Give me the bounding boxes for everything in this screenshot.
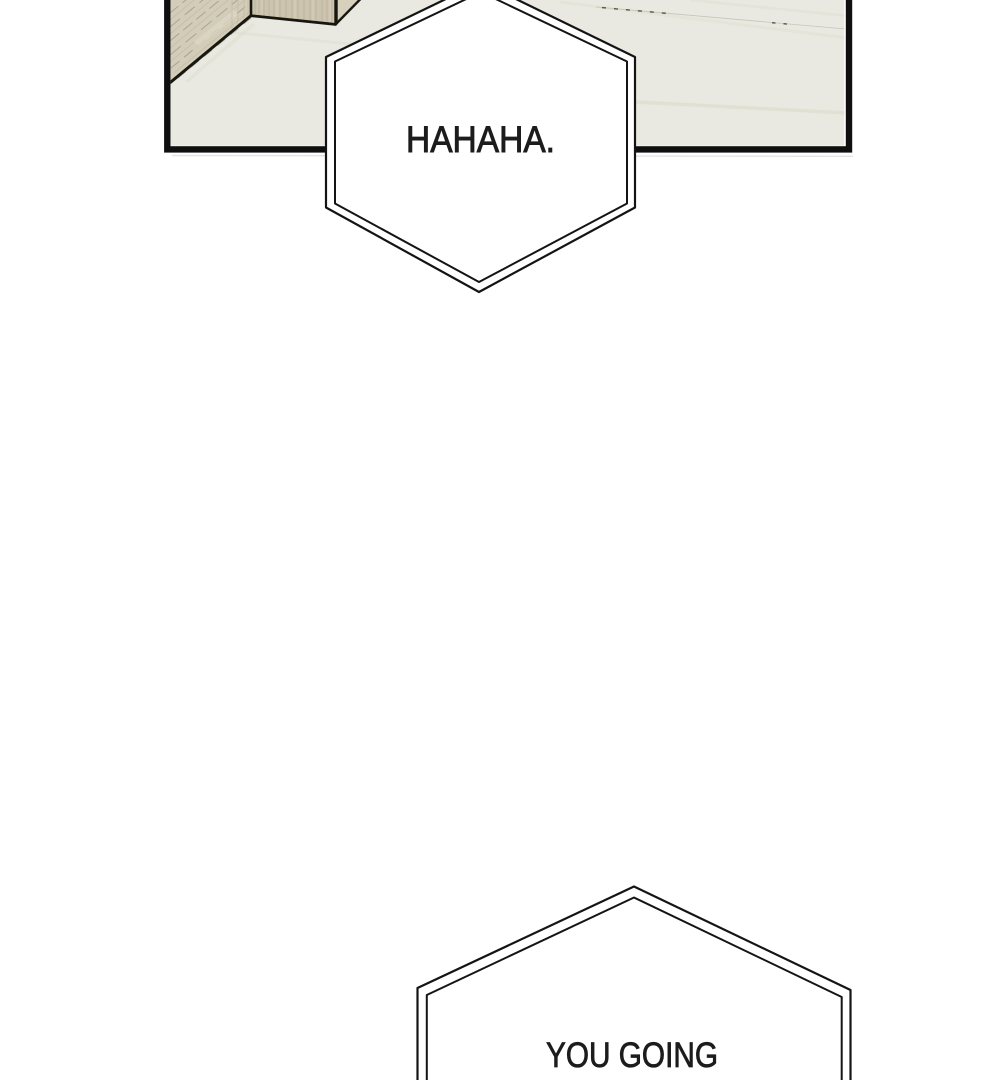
svg-text:YOU GOING: YOU GOING xyxy=(546,1036,718,1075)
svg-text:HAHAHA.: HAHAHA. xyxy=(406,119,555,160)
